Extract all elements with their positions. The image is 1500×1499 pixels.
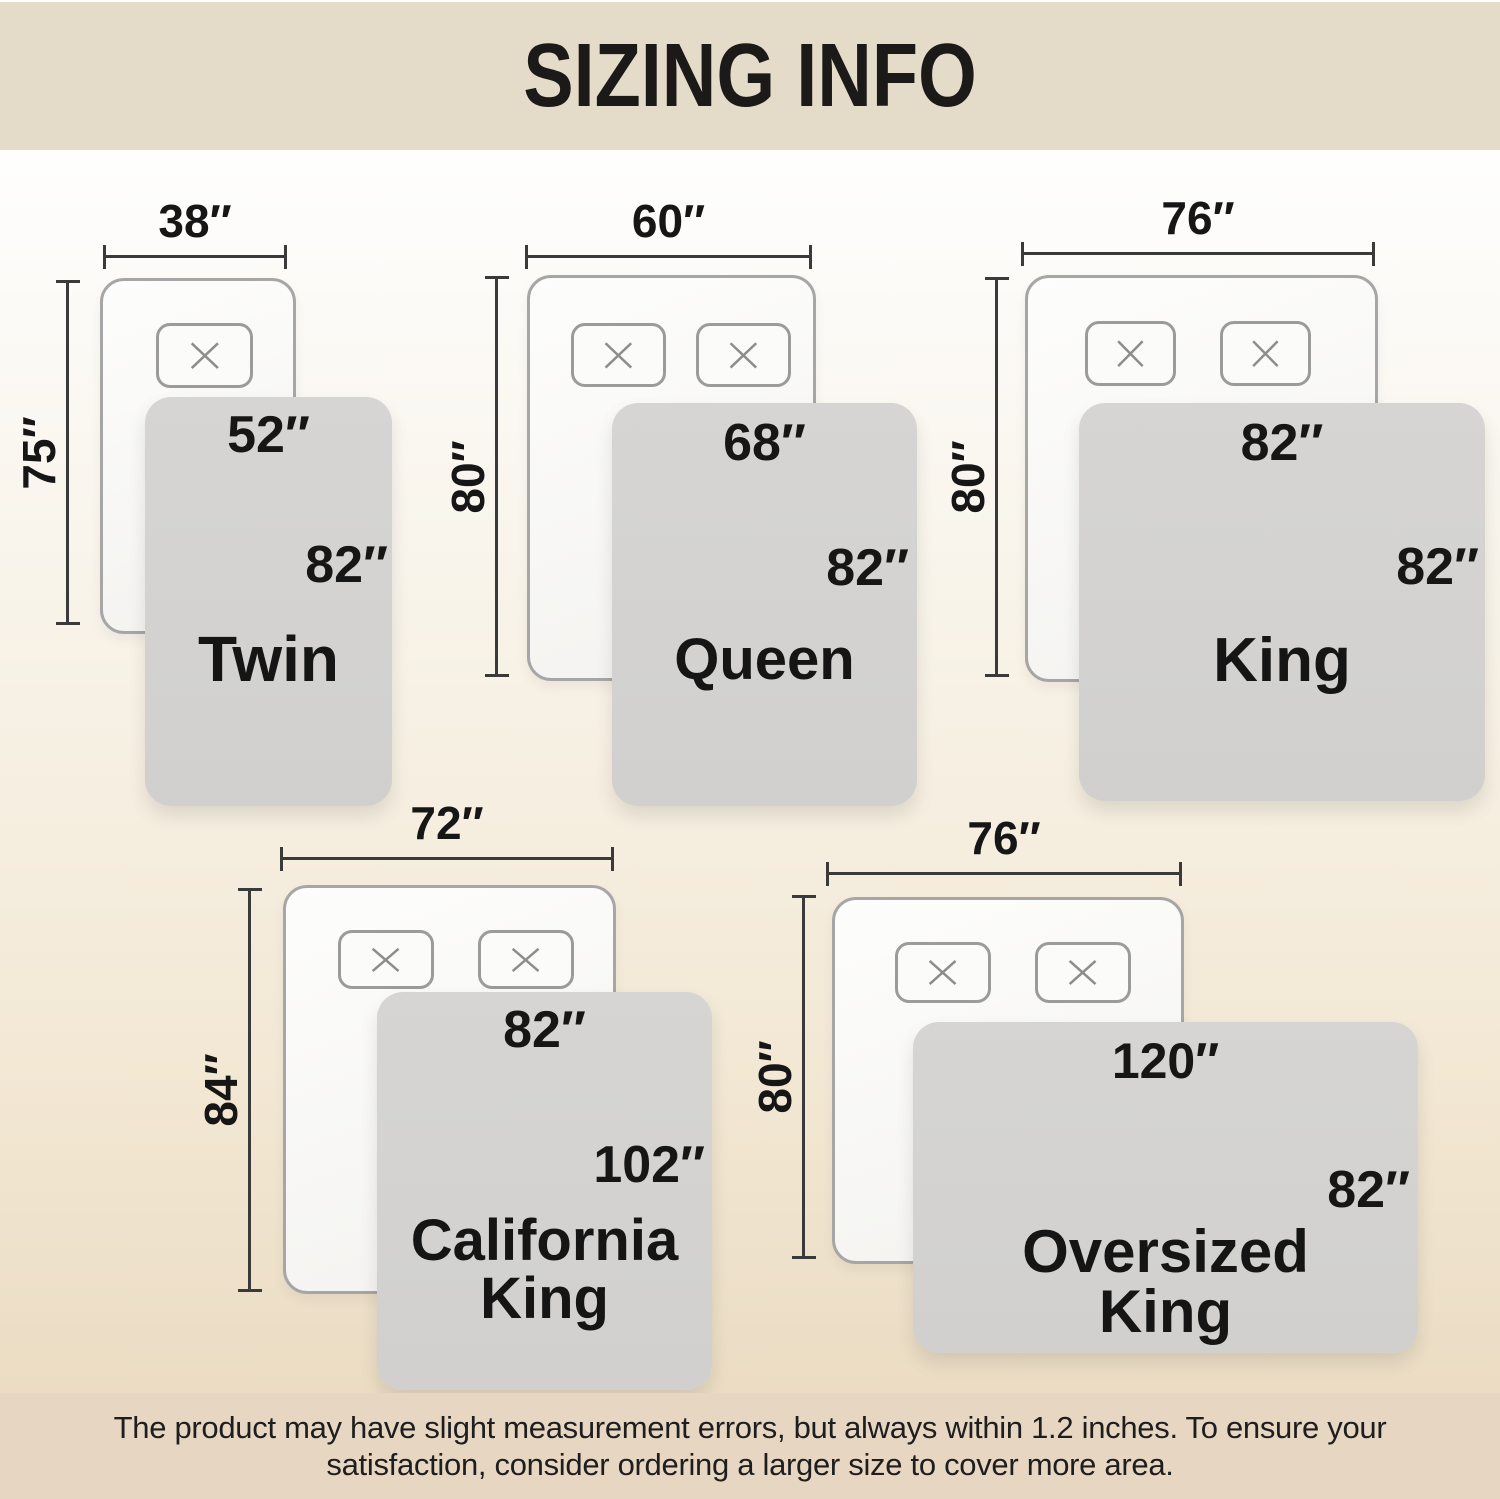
size-name: Queen [612, 631, 917, 689]
size-name: Twin [145, 627, 392, 691]
bed-length-label: 75″ [12, 416, 66, 489]
disclaimer-line-1: The product may have slight measurement … [114, 1412, 1387, 1443]
pillow-x-icon [1061, 956, 1104, 989]
bed-width-label: 76″ [967, 811, 1040, 865]
footer-band: The product may have slight measurement … [0, 1393, 1500, 1499]
blanket-width-label: 68″ [612, 413, 917, 473]
blanket-width-label: 52″ [145, 405, 392, 465]
length-dimension-line: 80″ [995, 279, 998, 675]
length-dimension-line: 75″ [66, 282, 69, 623]
pillow-x-icon [921, 956, 964, 989]
disclaimer-line-2: satisfaction, consider ordering a larger… [326, 1449, 1173, 1480]
length-dimension-line: 84″ [248, 890, 251, 1290]
length-dimension-line: 80″ [802, 897, 805, 1257]
pillow-x-icon [364, 944, 407, 976]
page-title: SIZING INFO [523, 25, 977, 128]
pillow [571, 323, 666, 387]
bed-width-label: 38″ [158, 194, 231, 248]
blanket-length-label: 82″ [305, 535, 388, 595]
size-name: Oversized King [985, 1222, 1346, 1342]
width-dimension-line: 76″ [828, 872, 1180, 875]
bed-width-label: 60″ [632, 194, 705, 248]
bed-length-label: 80″ [748, 1040, 802, 1113]
pillow-x-icon [722, 338, 765, 373]
pillow [1085, 321, 1176, 386]
pillow-x-icon [1110, 336, 1151, 371]
pillow [895, 942, 991, 1003]
blanket-width-label: 82″ [377, 1000, 712, 1060]
blanket-width-label: 82″ [1079, 413, 1485, 473]
width-dimension-line: 72″ [282, 857, 612, 860]
pillow [156, 323, 253, 388]
header-band: SIZING INFO [0, 2, 1500, 150]
pillow [338, 930, 434, 989]
width-dimension-line: 38″ [105, 255, 285, 258]
pillow [1220, 321, 1311, 386]
bed-length-label: 80″ [441, 440, 495, 513]
width-dimension-line: 76″ [1023, 252, 1373, 255]
blanket: 68″ 82″ Queen [612, 403, 917, 806]
blanket-length-label: 82″ [826, 538, 909, 598]
blanket: 82″ 102″ California King [377, 992, 712, 1390]
pillow-x-icon [597, 338, 640, 373]
pillow-x-icon [504, 944, 547, 976]
bed-width-label: 72″ [410, 796, 483, 850]
size-name: King [1079, 630, 1485, 692]
sizing-info-infographic: SIZING INFO 38″ 75″ 52″ 82″ Twin 60″ 80″ [0, 0, 1500, 1499]
pillow-x-icon [183, 338, 227, 373]
pillow [696, 323, 791, 387]
length-dimension-line: 80″ [495, 278, 498, 675]
size-name: California King [392, 1212, 697, 1328]
blanket-length-label: 82″ [1327, 1160, 1410, 1220]
bed-width-label: 76″ [1161, 191, 1234, 245]
blanket-length-label: 82″ [1396, 537, 1479, 597]
blanket: 120″ 82″ Oversized King [913, 1022, 1418, 1353]
bed-length-label: 84″ [194, 1053, 248, 1126]
bed-length-label: 80″ [941, 440, 995, 513]
pillow-x-icon [1245, 336, 1286, 371]
blanket: 82″ 82″ King [1079, 403, 1485, 801]
blanket: 52″ 82″ Twin [145, 397, 392, 806]
width-dimension-line: 60″ [527, 255, 810, 258]
blanket-width-label: 120″ [913, 1032, 1418, 1090]
pillow [1035, 942, 1131, 1003]
pillow [478, 930, 574, 989]
blanket-length-label: 102″ [593, 1135, 705, 1195]
